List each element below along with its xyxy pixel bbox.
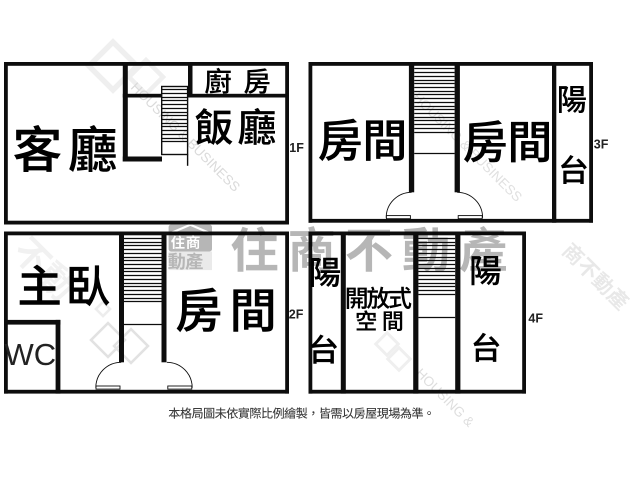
svg-text:HOUSING &: HOUSING & xyxy=(413,366,477,430)
svg-text:WC: WC xyxy=(5,337,57,372)
svg-text:1F: 1F xyxy=(289,141,304,155)
svg-text:3F: 3F xyxy=(594,137,609,151)
svg-text:2F: 2F xyxy=(289,308,304,322)
svg-text:HOUSING & BUSINESS: HOUSING & BUSINESS xyxy=(410,90,525,205)
svg-text:4F: 4F xyxy=(528,311,543,325)
